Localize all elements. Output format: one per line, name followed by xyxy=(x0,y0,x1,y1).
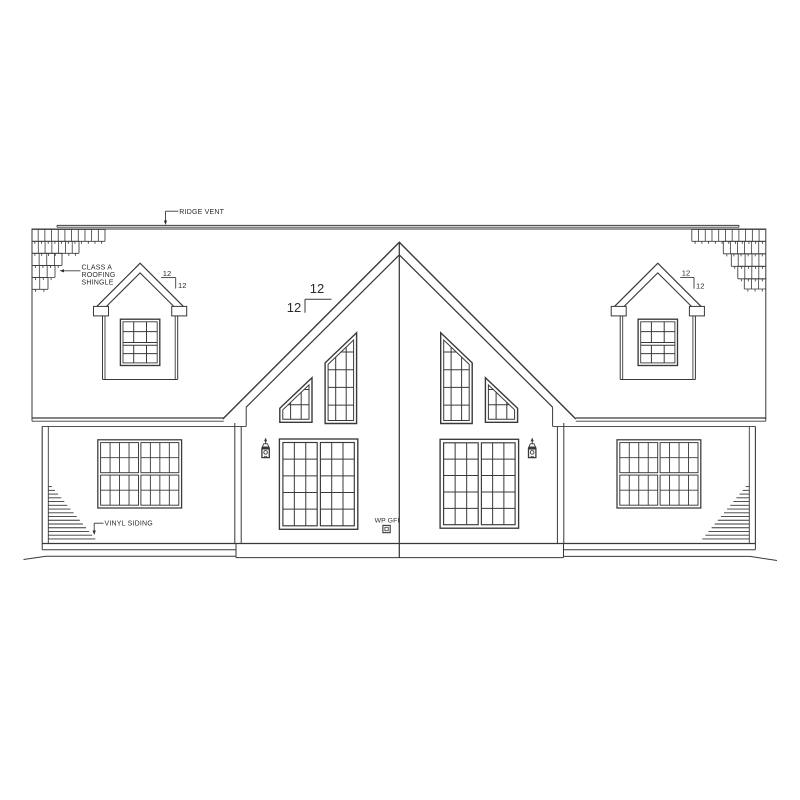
svg-text:12: 12 xyxy=(178,281,186,290)
svg-text:12: 12 xyxy=(310,281,324,296)
svg-text:CLASS A: CLASS A xyxy=(82,264,113,271)
svg-text:VINYL SIDING: VINYL SIDING xyxy=(105,521,153,528)
svg-text:12: 12 xyxy=(163,269,171,278)
svg-text:12: 12 xyxy=(682,268,690,277)
svg-text:ROOFING: ROOFING xyxy=(82,272,116,279)
svg-text:12: 12 xyxy=(287,300,301,315)
svg-text:RIDGE VENT: RIDGE VENT xyxy=(179,209,224,216)
svg-text:12: 12 xyxy=(696,281,704,290)
svg-text:SHINGLE: SHINGLE xyxy=(82,280,114,287)
svg-text:WP GFI: WP GFI xyxy=(375,518,400,525)
